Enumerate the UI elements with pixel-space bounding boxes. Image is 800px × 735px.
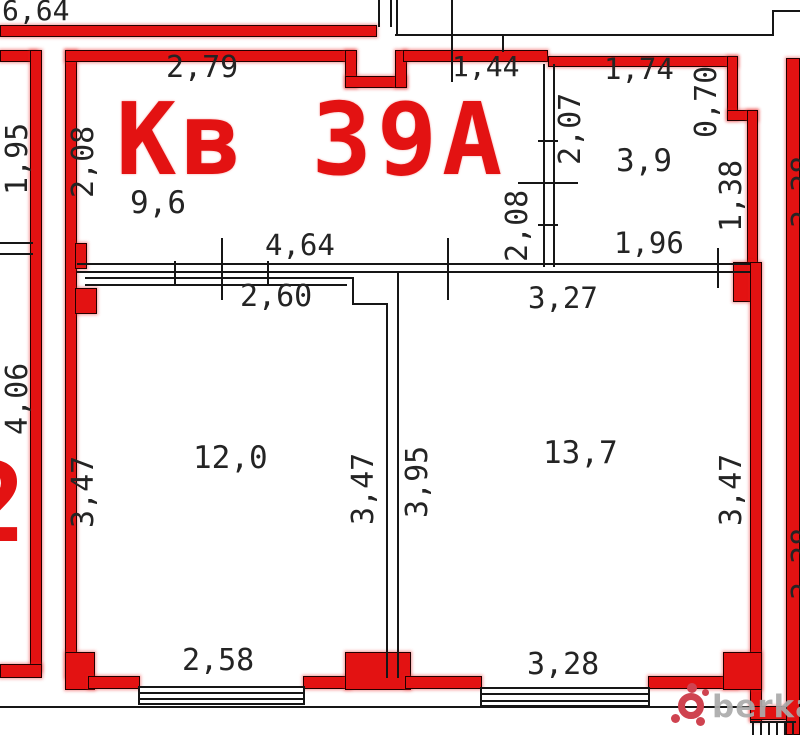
dim-hall-bottom: 4,64 (265, 231, 335, 260)
tick-bath-wall (518, 182, 578, 184)
room-area-bath: 3,9 (616, 146, 672, 177)
room-area-room2: 13,7 (543, 438, 618, 469)
tick-mid-1 (221, 238, 223, 300)
dim-left-unit-low: 4,06 (3, 363, 33, 435)
wall-bottom-c (405, 676, 482, 689)
dim-room1-left: 3,47 (69, 456, 99, 528)
line-top-stub-a (378, 0, 380, 27)
wall-mid-bottom (77, 271, 750, 273)
dim-top-unit: 6,64 (2, 0, 69, 25)
wall-left-pier2 (75, 288, 97, 314)
dim-room2-left: 3,95 (403, 446, 433, 518)
tick-mid-3 (717, 248, 719, 288)
dim-room1-right: 3,47 (349, 453, 379, 525)
dim-bath-top: 1,74 (604, 55, 674, 84)
wall-bottom-corner-r (723, 652, 762, 690)
dim-bath-right-up: 0,70 (692, 66, 722, 138)
wall-bottom-mid-pier (345, 652, 411, 690)
window-room2 (480, 687, 650, 707)
wall-left-pier1 (75, 243, 87, 269)
dim-hall-left: 2,08 (69, 126, 99, 198)
wall-room1-step-v (352, 277, 354, 305)
floor-plan: Кв 39А 2 6,64 2,79 1,44 1,74 9,6 3,9 4,6… (0, 0, 800, 735)
dim-room1-bottom: 2,58 (182, 646, 254, 676)
line-top-stub-b (390, 0, 392, 27)
wall-divider-r (397, 271, 399, 678)
line-upper-unit-v (772, 10, 774, 36)
berkat-logo-icon (668, 680, 712, 728)
wall-hall-bath-l (543, 64, 545, 267)
tick-left-unit-2 (0, 253, 33, 255)
wall-bottom-b (303, 676, 351, 689)
dim-right-unit-low: 3,38 (789, 528, 800, 600)
neighbor-label-fragment: 2 (0, 448, 26, 558)
room-area-room1: 12,0 (193, 443, 268, 474)
room-area-hall: 9,6 (130, 188, 186, 219)
tick-bath-wall-3 (538, 224, 558, 226)
dim-bath-right-low: 1,38 (717, 160, 747, 232)
window-room1 (138, 686, 305, 705)
line-upper-unit (395, 34, 774, 36)
tick-mid-2 (447, 238, 449, 300)
dim-room2-bottom: 3,28 (527, 650, 599, 680)
berkat-watermark: berkat. (712, 692, 800, 723)
wall-room1-top-a (85, 277, 353, 279)
wall-left-unit-bottom (0, 664, 42, 678)
line-upper-unit-h (772, 10, 800, 12)
line-upper-unit-v2 (396, 0, 398, 36)
wall-bottom-a (88, 676, 140, 689)
dim-left-unit-up: 1,95 (3, 123, 33, 195)
dim-room2-right: 3,47 (717, 454, 747, 526)
dim-hall-top2: 1,44 (452, 53, 519, 81)
dim-hall-mid: 2,08 (503, 190, 533, 262)
wall-divider-l (386, 305, 388, 678)
dim-bath-bottom: 1,96 (614, 229, 684, 258)
jamb-1 (174, 261, 176, 286)
dim-room1-top: 2,60 (240, 282, 312, 312)
wall-room1-step-h (352, 303, 388, 305)
tick-left-unit-1 (0, 242, 33, 244)
dim-right-unit-up: 3,38 (789, 156, 800, 228)
wall-right-pier (733, 262, 751, 302)
watermark-text: berkat (712, 692, 800, 723)
wall-mid-top (77, 263, 750, 265)
dim-bath-left: 2,07 (556, 93, 586, 165)
apartment-title: Кв 39А (116, 90, 507, 190)
dim-room2-top: 3,27 (528, 284, 598, 313)
dim-hall-top: 2,79 (166, 53, 238, 83)
